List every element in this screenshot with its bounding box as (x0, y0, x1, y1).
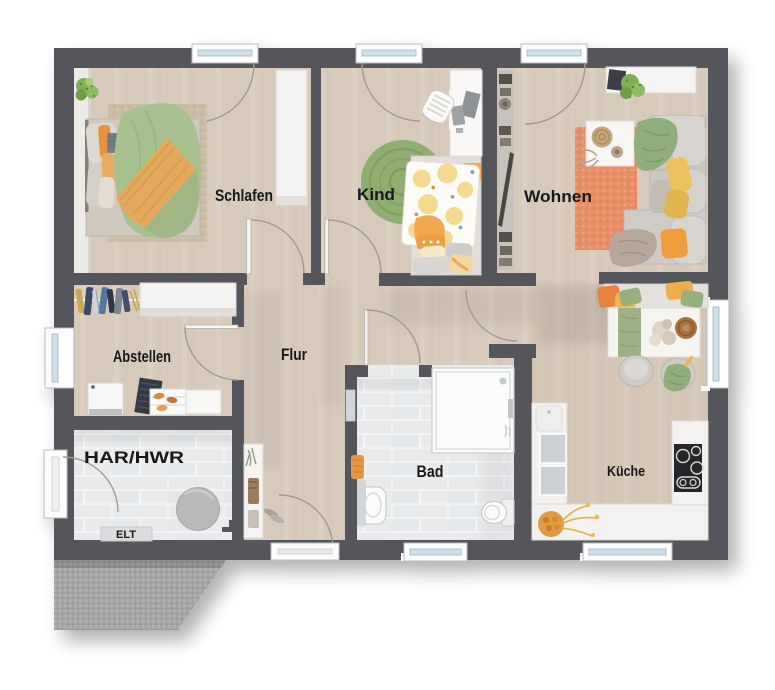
svg-text:Küche: Küche (607, 463, 645, 480)
svg-text:HAR/HWR: HAR/HWR (84, 448, 184, 467)
svg-text:Schlafen: Schlafen (215, 186, 273, 205)
svg-text:Flur: Flur (281, 345, 307, 364)
svg-text:Bad: Bad (417, 462, 444, 481)
svg-text:Kind: Kind (357, 185, 395, 204)
svg-text:Wohnen: Wohnen (524, 187, 592, 206)
svg-text:Abstellen: Abstellen (113, 347, 171, 366)
svg-text:ELT: ELT (116, 529, 136, 541)
